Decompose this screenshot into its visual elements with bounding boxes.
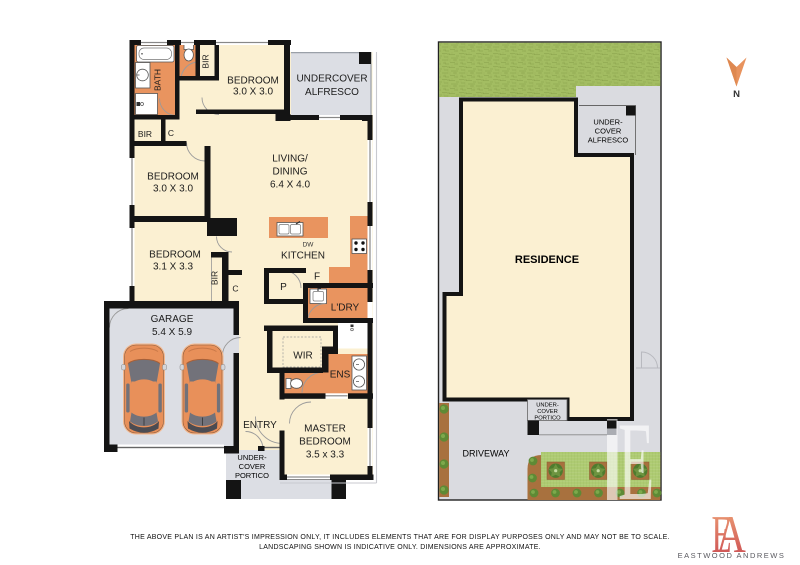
svg-text:C: C — [168, 128, 174, 138]
svg-text:3.0 X 3.0: 3.0 X 3.0 — [153, 184, 193, 195]
svg-text:LIVING/: LIVING/ — [272, 154, 308, 165]
svg-text:P: P — [280, 282, 287, 293]
svg-text:BEDROOM: BEDROOM — [299, 437, 351, 448]
svg-text:UNDER-: UNDER- — [536, 403, 559, 409]
svg-text:BIR: BIR — [138, 129, 152, 139]
svg-text:ALFRESCO: ALFRESCO — [305, 87, 359, 98]
svg-text:LANDSCAPING SHOWN IS INDICATIV: LANDSCAPING SHOWN IS INDICATIVE ONLY. DI… — [259, 544, 541, 551]
svg-text:PORTICO: PORTICO — [235, 471, 269, 480]
svg-text:EASTWOOD ANDREWS: EASTWOOD ANDREWS — [678, 551, 786, 560]
svg-text:DINING: DINING — [273, 167, 308, 178]
svg-text:ENTRY: ENTRY — [243, 420, 277, 431]
svg-text:UNDER-: UNDER- — [237, 453, 267, 462]
svg-text:E: E — [618, 400, 654, 524]
svg-text:BEDROOM: BEDROOM — [149, 250, 201, 261]
svg-text:L'DRY: L'DRY — [331, 303, 360, 314]
svg-text:BIR: BIR — [210, 271, 220, 285]
svg-text:BATH: BATH — [153, 69, 163, 91]
svg-text:KITCHEN: KITCHEN — [281, 251, 325, 262]
svg-text:COVER: COVER — [595, 127, 622, 136]
svg-text:C: C — [232, 284, 238, 294]
svg-text:BEDROOM: BEDROOM — [147, 172, 199, 183]
svg-text:3.5 x 3.3: 3.5 x 3.3 — [306, 450, 345, 461]
svg-text:5.4 X 5.9: 5.4 X 5.9 — [152, 327, 192, 338]
svg-text:3.1 X 3.3: 3.1 X 3.3 — [153, 262, 193, 273]
svg-text:BEDROOM: BEDROOM — [227, 76, 279, 87]
svg-text:6.4 X 4.0: 6.4 X 4.0 — [270, 180, 310, 191]
svg-text:ENS: ENS — [330, 370, 351, 381]
svg-text:COVER: COVER — [537, 409, 558, 415]
svg-text:COVER: COVER — [239, 462, 266, 471]
svg-text:MASTER: MASTER — [304, 424, 346, 435]
svg-text:GARAGE: GARAGE — [151, 314, 194, 325]
svg-text:F: F — [314, 272, 320, 283]
svg-text:ALFRESCO: ALFRESCO — [588, 136, 629, 145]
svg-text:THE ABOVE PLAN IS AN ARTIST'S: THE ABOVE PLAN IS AN ARTIST'S IMPRESSION… — [130, 534, 669, 541]
svg-text:UNDER-: UNDER- — [593, 118, 623, 127]
svg-text:BIR: BIR — [201, 54, 211, 68]
svg-text:WIR: WIR — [293, 351, 312, 362]
svg-text:UNDERCOVER: UNDERCOVER — [296, 74, 367, 85]
svg-text:DRIVEWAY: DRIVEWAY — [462, 449, 509, 459]
svg-text:DW: DW — [303, 242, 315, 249]
svg-text:N: N — [733, 89, 740, 100]
svg-text:3.0 X 3.0: 3.0 X 3.0 — [233, 87, 273, 98]
svg-text:RESIDENCE: RESIDENCE — [515, 254, 579, 266]
